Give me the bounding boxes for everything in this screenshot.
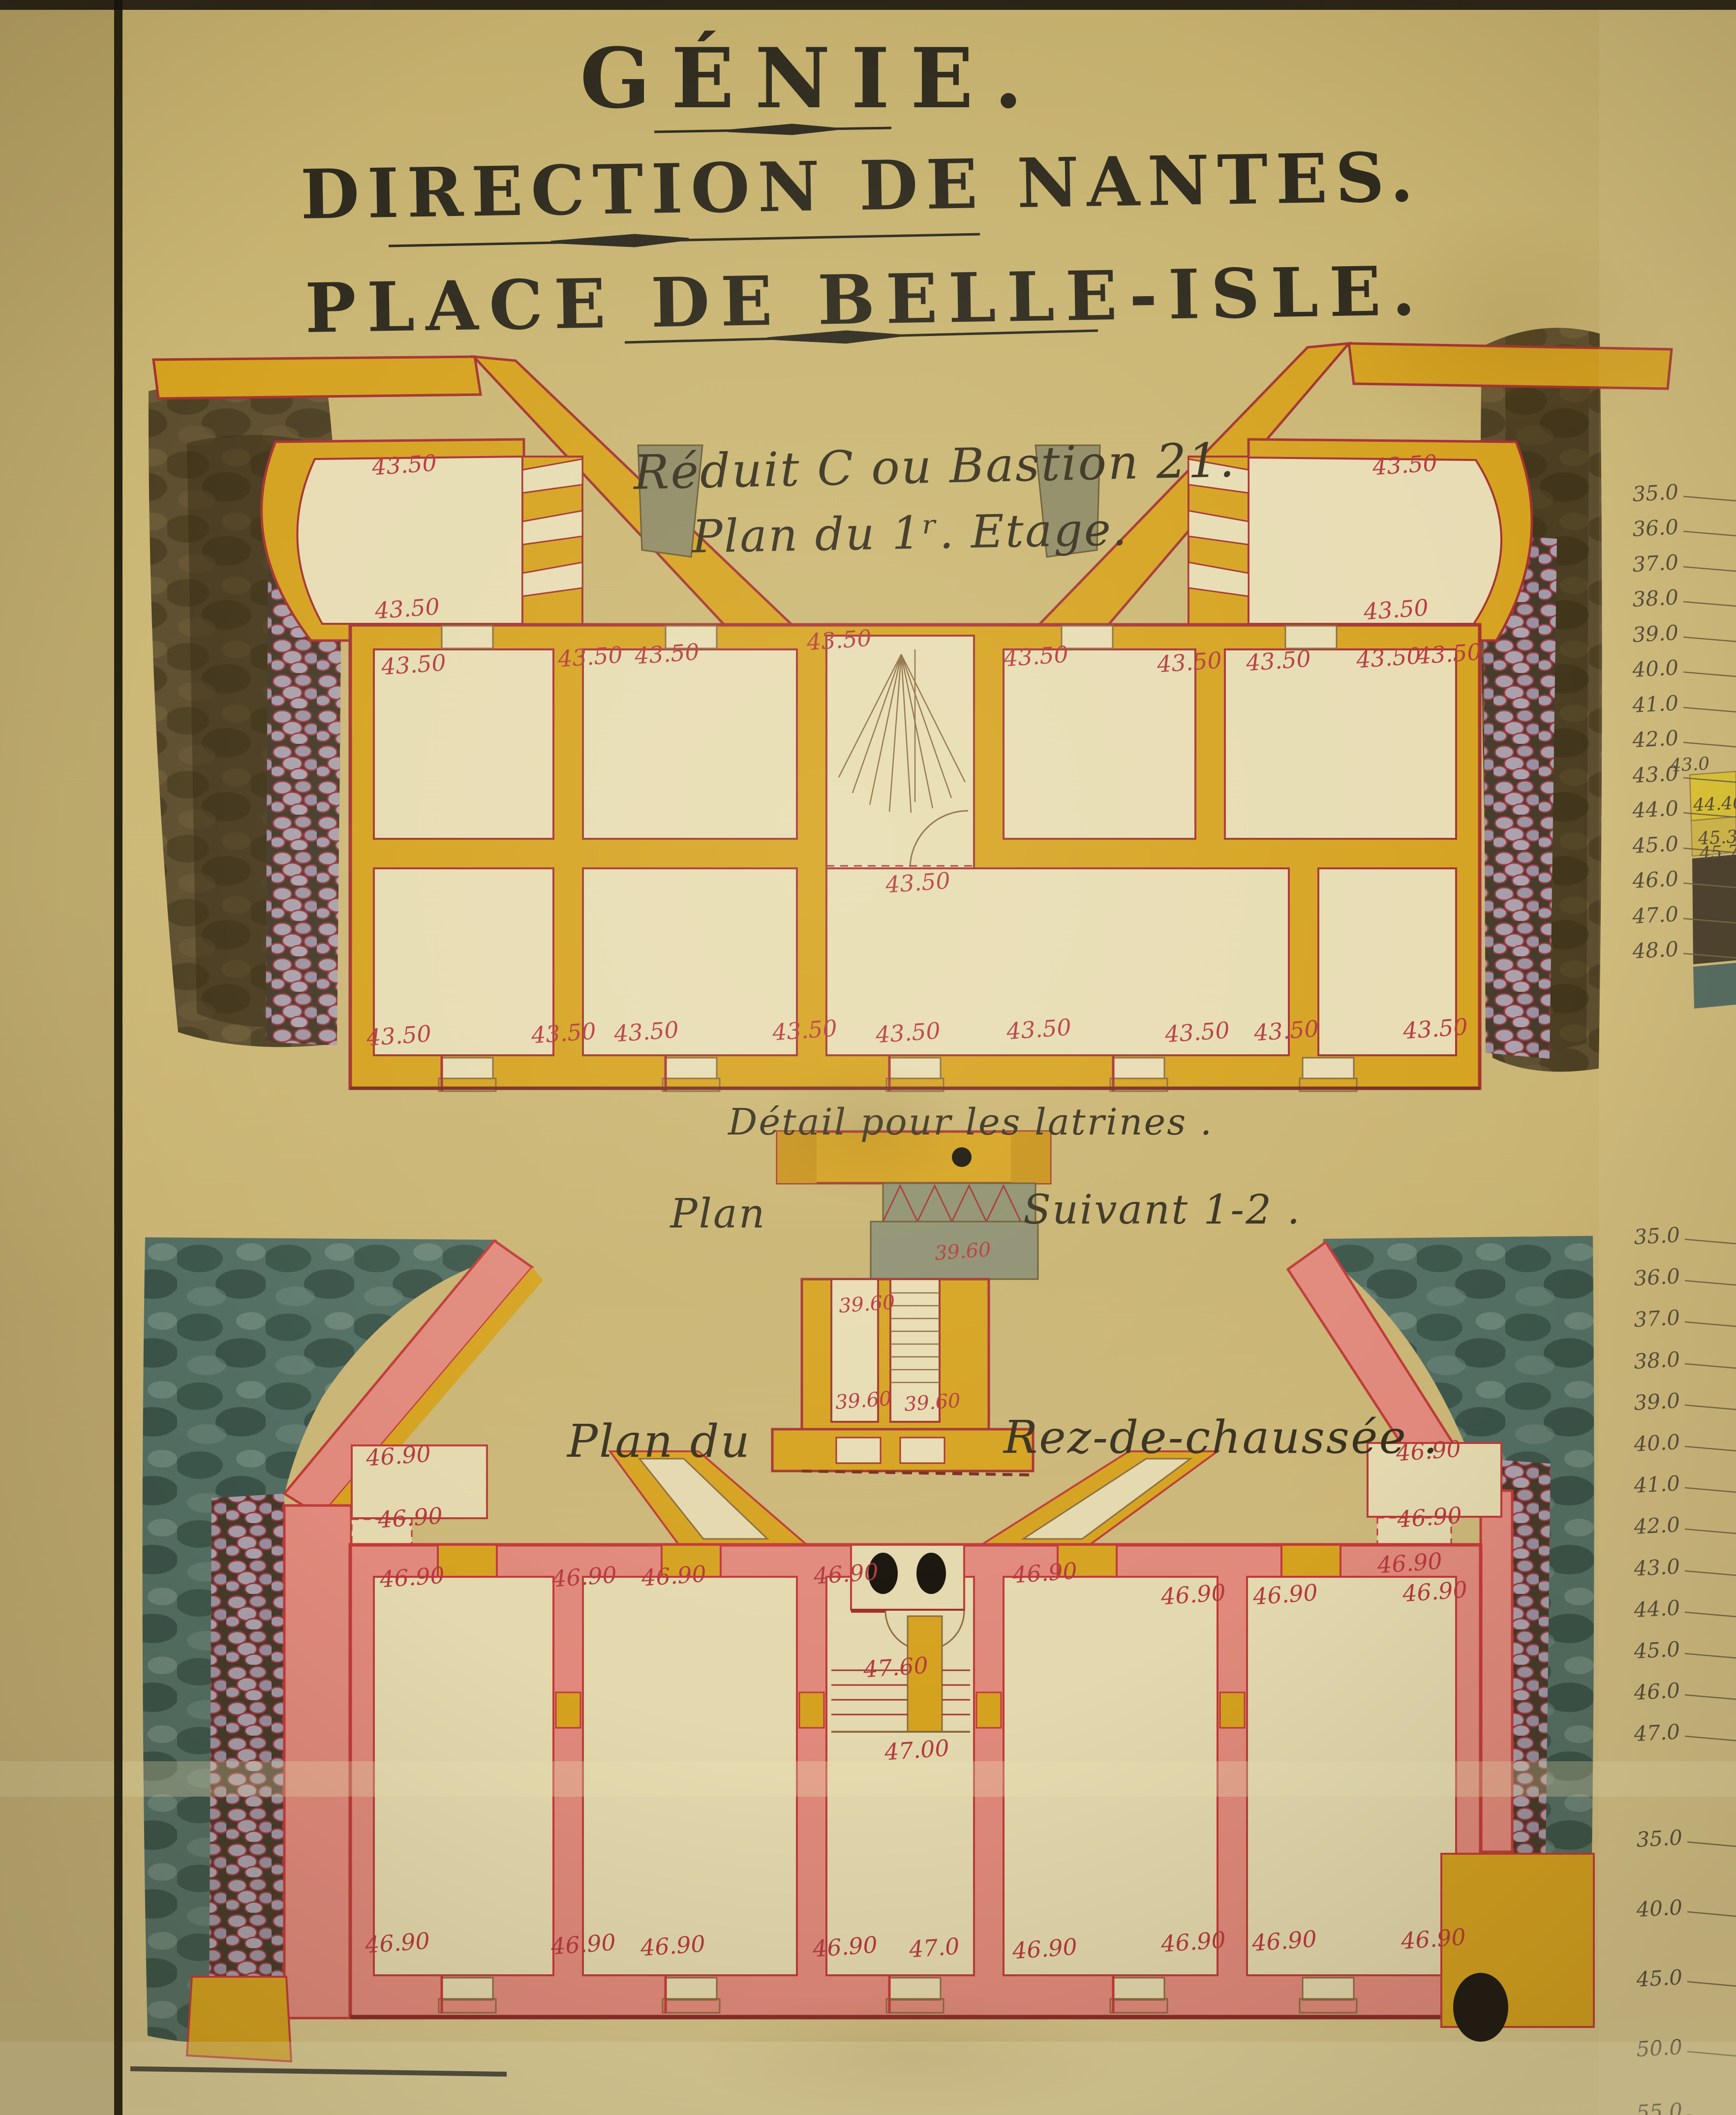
elevation-label: 46.90	[551, 1561, 617, 1592]
scale-elevation-label: 45.0	[1604, 831, 1679, 859]
scale-elevation-label: 35.0	[1608, 1825, 1683, 1853]
scale-elevation-label: 48.0	[1604, 937, 1679, 965]
elevation-label: 46.90	[1395, 1435, 1462, 1466]
scale-tick	[1685, 1612, 1736, 1617]
elevation-label: 47.00	[883, 1734, 950, 1765]
scale-tick	[1685, 1446, 1736, 1451]
elevation-label: 43.50	[1003, 641, 1069, 672]
scale-tick	[1685, 1364, 1736, 1368]
scale-tick	[1683, 496, 1736, 501]
paper-tear-hole	[1453, 1973, 1508, 2042]
scale-elevation-label: 36.0	[1604, 515, 1679, 543]
scale-tick	[1685, 1654, 1736, 1658]
scale-tick	[1685, 1488, 1736, 1492]
scale-elevation-label: 45.0	[1608, 1965, 1683, 1993]
title-place: PLACE DE BELLE-ISLE.	[305, 251, 1368, 348]
elevation-label: 46.90	[1376, 1547, 1443, 1578]
scale-tick	[1683, 567, 1736, 571]
scale-tick	[1683, 637, 1736, 642]
elevation-label: 46.90	[364, 1927, 430, 1958]
elevation-label: 46.90	[1401, 1576, 1468, 1607]
scale-elevation-label: 44.0	[1606, 1595, 1680, 1624]
scale-elevation-label: 38.0	[1604, 585, 1679, 613]
scale-tick	[1685, 1281, 1736, 1285]
scale-tick	[1685, 1695, 1736, 1699]
stairwell-upper	[826, 636, 974, 868]
elevation-label: 43.50	[530, 1017, 597, 1048]
scale-elevation-label: 50.0	[1608, 2035, 1683, 2063]
scale-tick	[1683, 602, 1736, 606]
elevation-label: 46.90	[377, 1502, 443, 1533]
scale-tick	[1685, 1736, 1736, 1741]
elevation-label: 46.90	[1160, 1579, 1226, 1610]
scale-elevation-label: 41.0	[1606, 1471, 1680, 1499]
elevation-label: 46.90	[812, 1931, 878, 1962]
elevation-label: 43.50	[613, 1016, 679, 1047]
scale-tick	[1685, 1239, 1736, 1244]
scale-tick	[1685, 1571, 1736, 1575]
scale-elevation-label: 47.0	[1606, 1719, 1680, 1747]
elevation-label: 43.50	[771, 1014, 838, 1045]
profile-elevation-label: 43.0	[1670, 754, 1710, 776]
elevation-label: 43.50	[557, 641, 623, 672]
scale-tick-lines	[1683, 496, 1736, 2115]
elevation-label: 46.90	[1011, 1933, 1078, 1964]
upper-plan-subtitle: Plan du 1ʳ. Etage.	[639, 502, 1181, 564]
elevation-label: 43.50	[1245, 645, 1311, 676]
scale-tick	[1683, 742, 1736, 747]
scale-elevation-label: 40.0	[1608, 1895, 1683, 1923]
elevation-label: 43.50	[1355, 642, 1422, 673]
elevation-label: 43.50	[806, 624, 872, 655]
scale-elevation-label: 46.0	[1606, 1678, 1680, 1706]
scale-elevation-label: 40.0	[1606, 1430, 1680, 1458]
elevation-label: 46.90	[1160, 1926, 1226, 1957]
elevation-label: 46.90	[813, 1558, 879, 1589]
elevation-label: 46.90	[379, 1562, 445, 1593]
profile-elevation-label: 44.40	[1693, 793, 1736, 815]
scale-tick	[1687, 1912, 1736, 1916]
scale-elevation-label: 40.0	[1604, 655, 1679, 683]
scale-tick	[1683, 707, 1736, 712]
elevation-label: 43.50	[1005, 1013, 1072, 1044]
scale-elevation-label: 37.0	[1604, 550, 1679, 578]
scale-tick	[1683, 531, 1736, 536]
elevation-label: 43.50	[1402, 1013, 1468, 1044]
latrine-detail-title: Détail pour les latrines .	[728, 1101, 1146, 1143]
scale-elevation-label: 39.0	[1606, 1388, 1680, 1416]
elevation-label: 43.50	[1253, 1015, 1319, 1046]
elevation-label: 46.90	[365, 1440, 431, 1471]
elevation-label: 43.50	[1164, 1016, 1230, 1047]
scale-elevation-label: 41.0	[1604, 691, 1679, 719]
elevation-label: 43.50	[1363, 594, 1429, 625]
scale-elevation-label: 43.0	[1606, 1554, 1680, 1582]
scale-elevation-label: 39.0	[1604, 620, 1679, 648]
scale-elevation-label: 47.0	[1604, 902, 1679, 930]
scale-elevation-label: 42.0	[1604, 726, 1679, 754]
scale-elevation-label: 46.0	[1604, 866, 1679, 894]
elevation-label: 46.90	[1400, 1923, 1466, 1954]
elevation-label: 39.60	[904, 1389, 961, 1416]
elevation-label: 43.50	[380, 649, 447, 680]
elevation-label: 46.90	[1396, 1502, 1462, 1533]
scale-elevation-label: 35.0	[1604, 480, 1679, 508]
scale-tick	[1685, 1322, 1736, 1326]
latrine-section-caption: Suivant 1-2 .	[1023, 1187, 1254, 1233]
elevation-label: 43.50	[1416, 638, 1482, 669]
elevation-label: 46.90	[640, 1560, 707, 1591]
lower-plan-title-right: Rez-de-chaussée .	[1004, 1411, 1348, 1464]
elevation-label: 39.60	[934, 1238, 992, 1265]
scale-elevation-label: 36.0	[1606, 1264, 1680, 1292]
elevation-label: 39.60	[838, 1291, 896, 1318]
elevation-label: 43.50	[875, 1017, 941, 1048]
elevation-label: 43.50	[634, 638, 700, 669]
elevation-label: 47.60	[862, 1652, 929, 1683]
latrine-plan-caption: Plan	[664, 1191, 772, 1237]
elevation-label: 43.50	[1156, 646, 1222, 677]
elevation-label: 43.50	[884, 867, 951, 898]
elevation-label: 43.50	[374, 593, 440, 624]
drawing-sheet: GÉNIE. DIRECTION DE NANTES. PLACE DE BEL…	[0, 0, 1736, 2115]
elevation-label: 47.0	[908, 1932, 960, 1962]
scale-tick	[1687, 1982, 1736, 1986]
profile-elevation-label: 45.70	[1699, 841, 1736, 863]
elevation-label: 46.90	[1011, 1557, 1078, 1588]
elevation-label: 46.90	[1252, 1579, 1318, 1610]
latrine-vent-dot	[952, 1147, 972, 1167]
scale-elevation-label: 45.0	[1606, 1637, 1680, 1665]
scale-tick	[1685, 1405, 1736, 1410]
scale-elevation-label: 35.0	[1606, 1223, 1680, 1251]
elevation-label: 43.50	[1371, 449, 1438, 480]
elevation-label: 46.90	[550, 1929, 616, 1960]
elevation-label: 46.90	[640, 1930, 706, 1961]
scale-tick	[1687, 2052, 1736, 2056]
scale-tick	[1687, 1842, 1736, 1846]
elevation-label: 39.60	[835, 1387, 892, 1414]
scale-elevation-label: 37.0	[1606, 1305, 1680, 1333]
scale-tick	[1685, 1529, 1736, 1533]
title-corps: GÉNIE.	[541, 30, 1082, 127]
scale-elevation-label: 42.0	[1606, 1512, 1680, 1540]
lower-plan-title-left: Plan du	[561, 1415, 758, 1468]
scale-elevation-label: 38.0	[1606, 1347, 1680, 1375]
elevation-label: 46.90	[1251, 1925, 1317, 1956]
scale-elevation-label: 44.0	[1604, 796, 1679, 824]
scale-tick	[1683, 672, 1736, 676]
elevation-label: 43.50	[365, 1020, 432, 1051]
embrasures-left	[522, 457, 582, 625]
elevation-label: 43.50	[371, 449, 437, 480]
cobble-band-lower-left	[209, 1494, 284, 2036]
scale-elevation-label: 43.0	[1604, 761, 1679, 789]
